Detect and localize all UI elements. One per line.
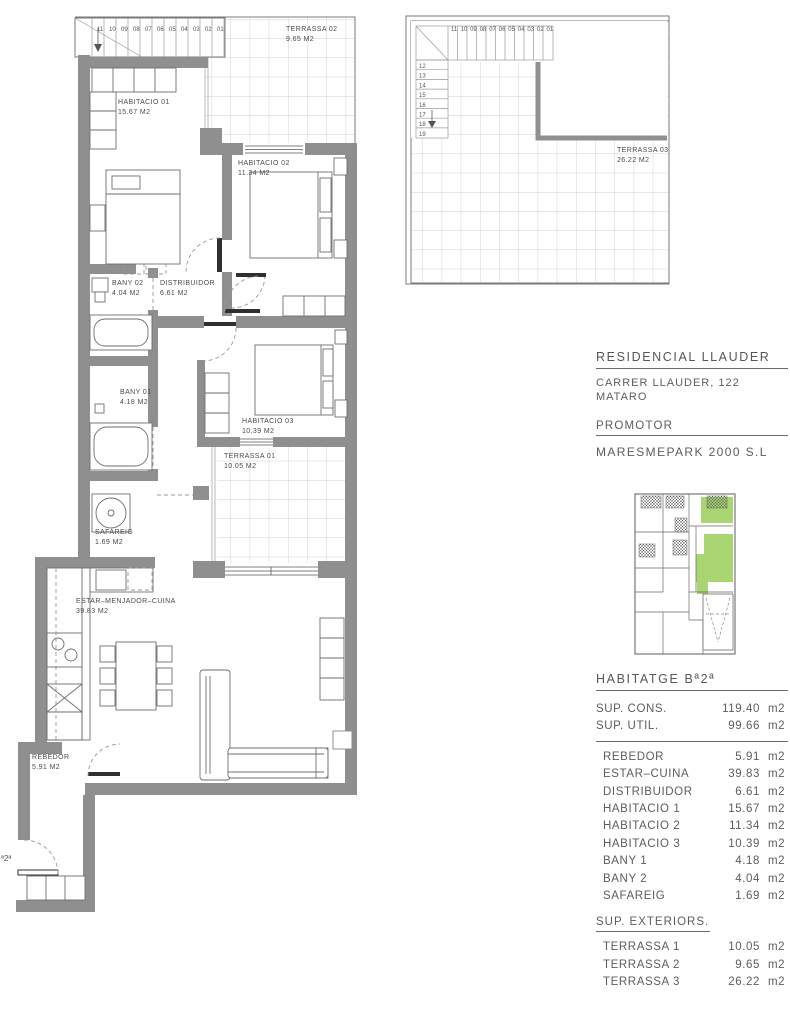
sup-rows: SUP. CONS. 119.40 m2 SUP. UTIL. 99.66 m2 xyxy=(596,703,788,738)
area-row: TERRASSA 3 26.22 m2 xyxy=(596,976,788,993)
area-row-label: TERRASSA 2 xyxy=(603,959,714,971)
area-row-value: 6.61 xyxy=(714,786,760,798)
area-row: HABITACIO 2 11.34 m2 xyxy=(596,820,788,837)
stair-step-number: 10 xyxy=(109,27,116,33)
area-row-unit: m2 xyxy=(768,976,788,988)
stair-step-number: 07 xyxy=(145,27,152,33)
area-row-value: 4.04 xyxy=(714,873,760,885)
room-label: TERRASSA 02 xyxy=(286,26,337,33)
plan-sheet: 1110090807060504030201 xyxy=(0,0,790,1024)
area-row: TERRASSA 1 10.05 m2 xyxy=(596,941,788,958)
area-row-unit: m2 xyxy=(768,941,788,953)
area-row-value: 4.18 xyxy=(714,855,760,867)
area-row-label: ESTAR–CUINA xyxy=(603,768,714,780)
promoter-label: PROMOTOR xyxy=(596,420,788,436)
area-row-label: SUP. CONS. xyxy=(596,703,714,715)
title-block: RESIDENCIAL LLAUDER CARRER LLAUDER, 122 … xyxy=(596,350,788,459)
area-row-unit: m2 xyxy=(768,786,788,798)
area-row: DISTRIBUIDOR 6.61 m2 xyxy=(596,786,788,803)
room-label: BANY 01 xyxy=(120,389,151,396)
terrassa01-railing xyxy=(212,447,215,561)
room-area: 11.34 M2 xyxy=(238,170,270,177)
area-row-value: 10.05 xyxy=(714,941,760,953)
stair-step-number: 01 xyxy=(547,27,554,33)
stair-step-number: 14 xyxy=(419,83,426,89)
area-row-value: 99.66 xyxy=(714,720,760,732)
stair-step-number: 01 xyxy=(217,27,224,33)
staircase-main: 1110090807060504030201 xyxy=(75,18,225,57)
promoter-name: MARESMEPARK 2000 S.L xyxy=(596,445,788,459)
room-area: 39.83 M2 xyxy=(76,608,108,615)
room-label: ESTAR–MENJADOR–CUINA xyxy=(76,598,176,605)
area-row-value: 5.91 xyxy=(714,751,760,763)
room-area: 10.05 M2 xyxy=(224,463,256,470)
stair-step-number: 16 xyxy=(419,103,426,109)
stair-step-number: 04 xyxy=(181,27,188,33)
area-row-unit: m2 xyxy=(768,703,788,715)
area-row-unit: m2 xyxy=(768,959,788,971)
stair-step-number: 19 xyxy=(419,132,426,138)
stair-step-number: 11 xyxy=(97,27,104,33)
area-row-value: 119.40 xyxy=(714,703,760,715)
area-row-unit: m2 xyxy=(768,751,788,763)
terrassa02-tiles xyxy=(205,18,355,143)
room-label: SAFAREIG xyxy=(95,529,133,536)
room-area: 1.69 M2 xyxy=(95,539,123,546)
area-row-label: REBEDOR xyxy=(603,751,714,763)
stair-step-number: 06 xyxy=(499,27,506,33)
stair-step-number: 08 xyxy=(480,27,487,33)
room-label: DISTRIBUIDOR xyxy=(160,280,215,287)
area-row-unit: m2 xyxy=(768,890,788,902)
stair-step-number: 15 xyxy=(419,93,426,99)
area-row: SUP. UTIL. 99.66 m2 xyxy=(596,720,788,737)
stair-step-number: 03 xyxy=(193,27,200,33)
area-row: SUP. CONS. 119.40 m2 xyxy=(596,703,788,720)
area-row: ESTAR–CUINA 39.83 m2 xyxy=(596,768,788,785)
area-row-value: 11.34 xyxy=(714,820,760,832)
upper-void xyxy=(536,21,667,140)
area-row-unit: m2 xyxy=(768,873,788,885)
area-row: BANY 1 4.18 m2 xyxy=(596,855,788,872)
area-row-value: 26.22 xyxy=(714,976,760,988)
room-label: HABITACIO 03 xyxy=(242,418,294,425)
stair-step-number: 09 xyxy=(121,27,128,33)
stair-step-number: 12 xyxy=(419,64,426,70)
area-row-value: 1.69 xyxy=(714,890,760,902)
room-area: 4.18 M2 xyxy=(120,399,148,406)
area-row-label: BANY 2 xyxy=(603,873,714,885)
stair-step-number: 04 xyxy=(518,27,525,33)
key-plan-garage xyxy=(703,594,733,650)
unit-door-tag: ª2ª xyxy=(1,854,11,863)
room-area: 9.65 M2 xyxy=(286,36,314,43)
room-label: REBEDOR xyxy=(32,754,69,761)
stair-step-number: 09 xyxy=(470,27,477,33)
room-label: HABITACIO 01 xyxy=(118,99,170,106)
room-area: 15.67 M2 xyxy=(118,109,150,116)
area-row: BANY 2 4.04 m2 xyxy=(596,873,788,890)
room-area: 6.61 M2 xyxy=(160,290,188,297)
stair-step-number: 17 xyxy=(419,113,426,119)
area-row-label: DISTRIBUIDOR xyxy=(603,786,714,798)
main-floor-plan: 1110090807060504030201 xyxy=(1,17,357,912)
area-row-label: TERRASSA 3 xyxy=(603,976,714,988)
table-divider xyxy=(596,741,788,742)
stair-step-number: 11 xyxy=(451,27,458,33)
area-row-label: HABITACIO 2 xyxy=(603,820,714,832)
area-row-label: SUP. UTIL. xyxy=(596,720,714,732)
area-table: HABITATGE Bª2ª SUP. CONS. 119.40 m2 SUP.… xyxy=(596,672,788,993)
stair-step-number: 18 xyxy=(419,122,426,128)
room-label: TERRASSA 03 xyxy=(617,147,668,154)
project-address-line2: MATARO xyxy=(596,390,788,404)
stair-step-number: 02 xyxy=(205,27,212,33)
room-label: BANY 02 xyxy=(112,280,143,287)
area-row: HABITACIO 1 15.67 m2 xyxy=(596,803,788,820)
area-row: TERRASSA 2 9.65 m2 xyxy=(596,959,788,976)
room-area: 5.91 M2 xyxy=(32,764,60,771)
area-row-label: TERRASSA 1 xyxy=(603,941,714,953)
area-row-label: HABITACIO 1 xyxy=(603,803,714,815)
interior-rows: REBEDOR 5.91 m2 ESTAR–CUINA 39.83 m2 DIS… xyxy=(596,751,788,908)
key-plan xyxy=(633,492,737,660)
stair-step-number: 06 xyxy=(157,27,164,33)
area-row-label: BANY 1 xyxy=(603,855,714,867)
project-address-line1: CARRER LLAUDER, 122 xyxy=(596,376,788,390)
area-row-label: SAFAREIG xyxy=(603,890,714,902)
stair-step-number: 10 xyxy=(461,27,468,33)
exterior-rows: TERRASSA 1 10.05 m2 TERRASSA 2 9.65 m2 T… xyxy=(596,941,788,993)
roof-terrace-plan: 1110090807060504030201 1213141516171819 … xyxy=(406,16,669,284)
area-row-value: 15.67 xyxy=(714,803,760,815)
area-row-unit: m2 xyxy=(768,820,788,832)
area-row-unit: m2 xyxy=(768,768,788,780)
stair-numbers-roof: 1110090807060504030201 xyxy=(451,27,554,33)
area-row-value: 9.65 xyxy=(714,959,760,971)
stair-step-number: 08 xyxy=(133,27,140,33)
exteriors-heading: SUP. EXTERIORS. xyxy=(596,916,710,932)
stair-step-number: 05 xyxy=(508,27,515,33)
stair-step-number: 05 xyxy=(169,27,176,33)
room-label: HABITACIO 02 xyxy=(238,160,290,167)
area-row-value: 39.83 xyxy=(714,768,760,780)
area-row-unit: m2 xyxy=(768,838,788,850)
room-area: 26.22 M2 xyxy=(617,157,649,164)
room-label: TERRASSA 01 xyxy=(224,453,275,460)
stair-step-number: 13 xyxy=(419,74,426,80)
room-area: 10.39 M2 xyxy=(242,428,274,435)
stair-step-number: 02 xyxy=(537,27,544,33)
area-row-label: HABITACIO 3 xyxy=(603,838,714,850)
wall-niche xyxy=(333,731,352,749)
stair-step-number: 03 xyxy=(527,27,534,33)
unit-heading: HABITATGE Bª2ª xyxy=(596,672,788,691)
area-row-unit: m2 xyxy=(768,803,788,815)
area-row-unit: m2 xyxy=(768,720,788,732)
stair-step-number: 07 xyxy=(489,27,496,33)
area-row-unit: m2 xyxy=(768,855,788,867)
room-area: 4.04 M2 xyxy=(112,290,140,297)
area-row-value: 10.39 xyxy=(714,838,760,850)
area-row: SAFAREIG 1.69 m2 xyxy=(596,890,788,907)
area-row: REBEDOR 5.91 m2 xyxy=(596,751,788,768)
project-title: RESIDENCIAL LLAUDER xyxy=(596,350,788,369)
area-row: HABITACIO 3 10.39 m2 xyxy=(596,838,788,855)
